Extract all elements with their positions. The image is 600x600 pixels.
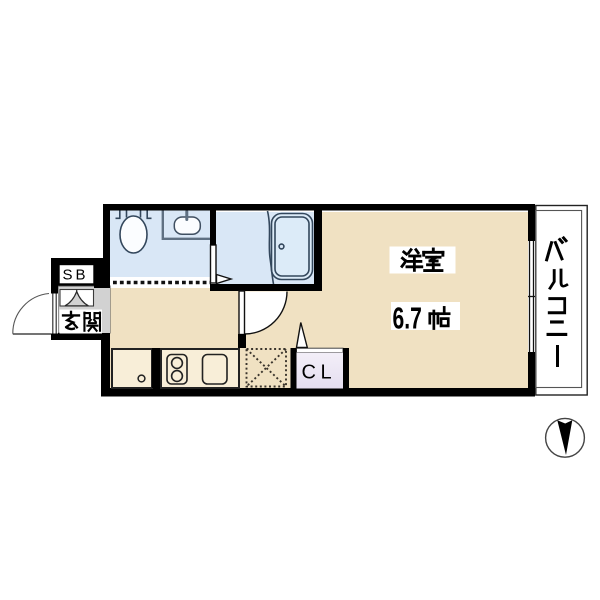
svg-text:SB: SB	[62, 267, 88, 284]
svg-text:CL: CL	[302, 362, 337, 384]
svg-text:6.7: 6.7	[393, 300, 422, 335]
